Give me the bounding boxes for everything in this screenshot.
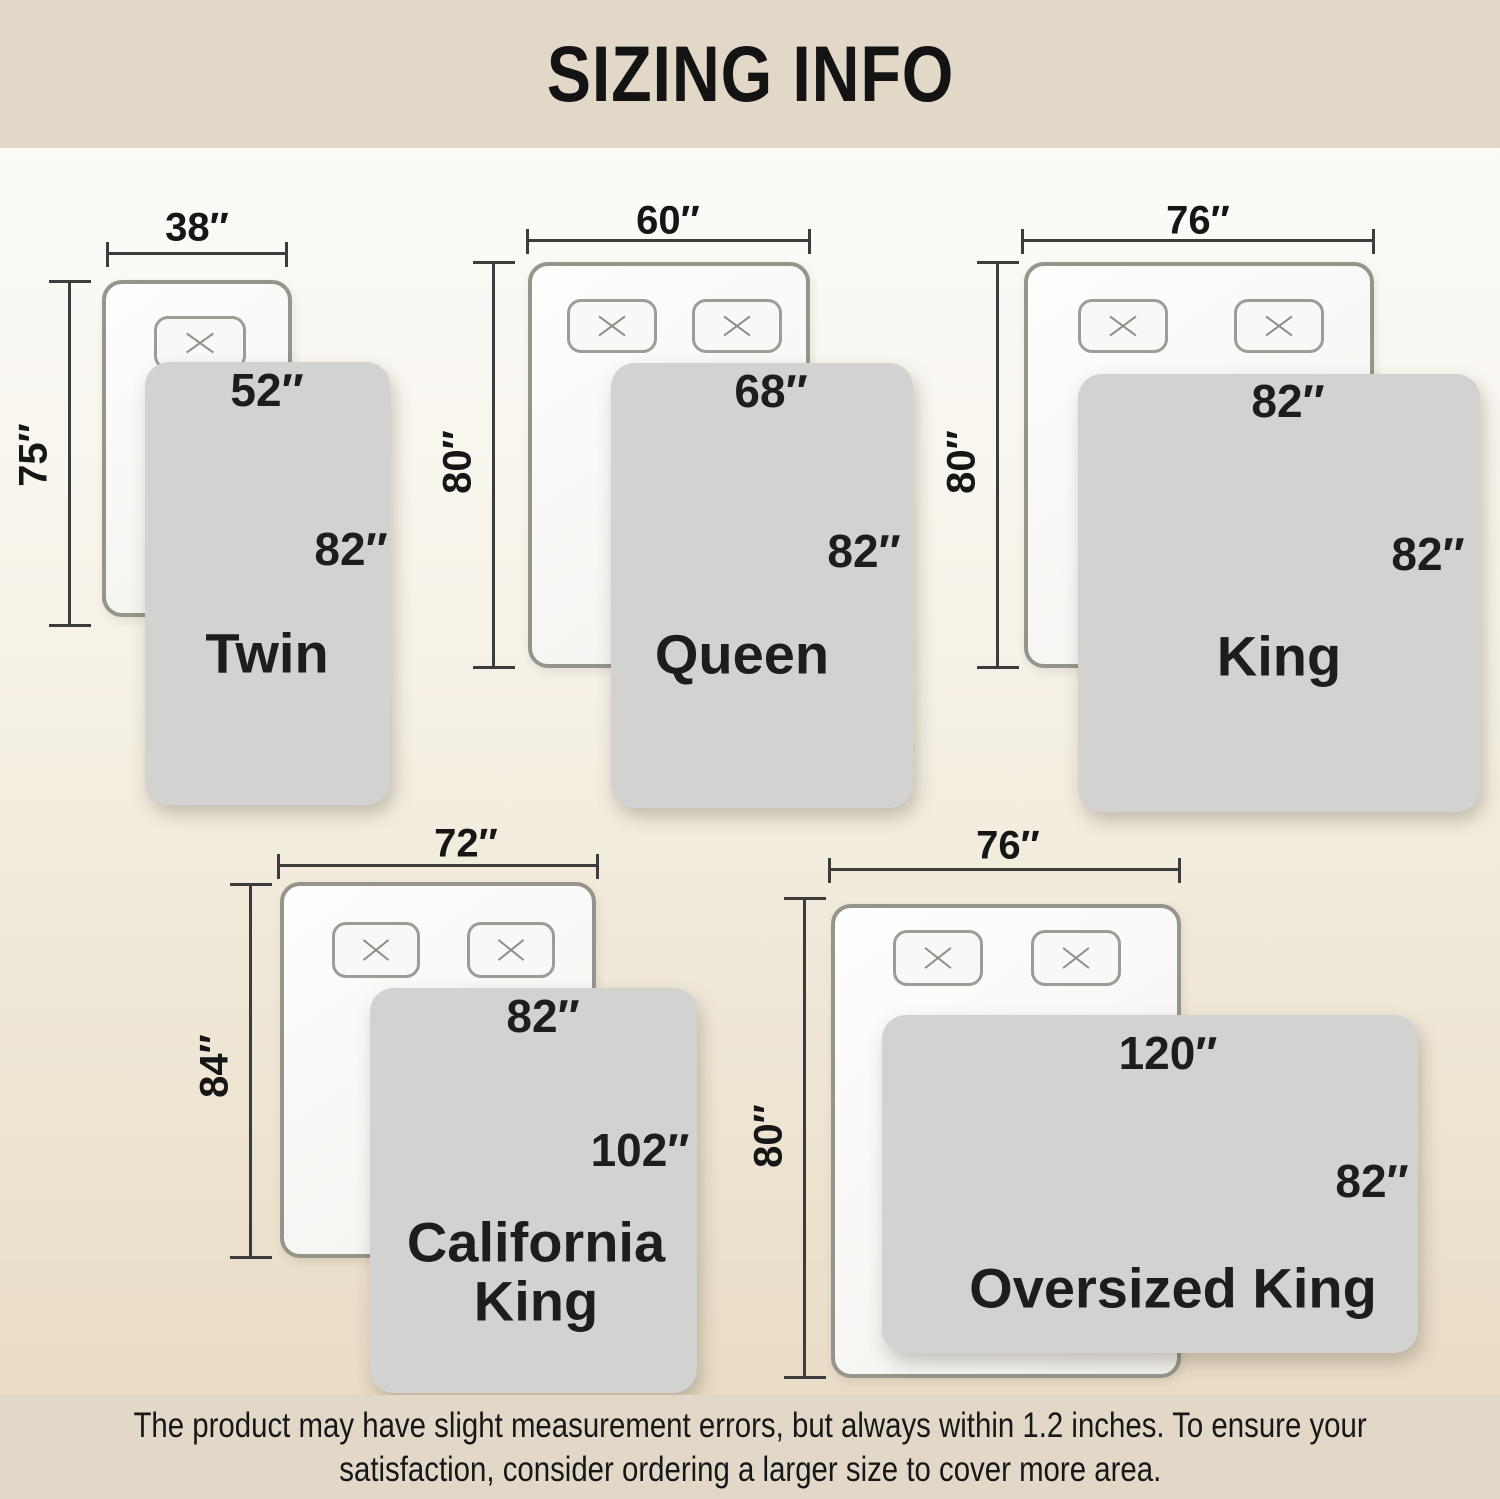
oversized-king-bed-height-label: 80″: [747, 1104, 792, 1168]
pillow-x-icon: [1243, 308, 1315, 344]
pillow-x-icon: [701, 308, 773, 344]
oversized-king-size-name: Oversized King: [958, 1258, 1388, 1317]
oversized-king-blanket-width-label: 120″: [1119, 1026, 1218, 1080]
oversized-king-pillow-right: [1031, 930, 1121, 986]
king-size-name: King: [1217, 626, 1341, 685]
king-bed-width-label: 76″: [1166, 199, 1230, 244]
queen-bed-height-label: 80″: [436, 430, 481, 494]
california-king-size-name: California King: [361, 1213, 711, 1332]
queen-blanket-width-label: 68″: [734, 364, 807, 418]
oversized-king-bed-width-label: 76″: [976, 824, 1040, 869]
oversized-king-blanket-height-label: 82″: [1335, 1154, 1408, 1208]
california-king-height-dimension-line: [249, 884, 252, 1258]
king-blanket-width-label: 82″: [1251, 374, 1324, 428]
king-height-dimension-line: [996, 262, 999, 668]
twin-size-name: Twin: [205, 623, 328, 682]
footer-note-line-2: satisfaction, consider ordering a larger…: [339, 1449, 1161, 1490]
page-title: SIZING INFO: [546, 28, 953, 120]
twin-bed-width-label: 38″: [165, 206, 229, 251]
oversized-king-height-dimension-line: [803, 898, 806, 1378]
california-king-pillow-right: [467, 922, 555, 978]
california-king-blanket-height-label: 102″: [591, 1123, 690, 1177]
pillow-x-icon: [476, 931, 546, 969]
sizing-infographic: SIZING INFO 38″ 75″ 52″ 82″ Twin 60″ 80″…: [0, 0, 1500, 1499]
queen-pillow-right: [692, 299, 782, 353]
footer-note-line-1: The product may have slight measurement …: [133, 1405, 1366, 1446]
king-blanket-height-label: 82″: [1391, 527, 1464, 581]
queen-blanket: [611, 363, 913, 808]
footer-band: The product may have slight measurement …: [0, 1395, 1500, 1499]
king-blanket: [1078, 374, 1480, 812]
california-king-pillow-left: [332, 922, 420, 978]
pillow-x-icon: [163, 325, 237, 361]
twin-blanket: [145, 362, 390, 805]
king-bed-height-label: 80″: [940, 430, 985, 494]
queen-height-dimension-line: [492, 262, 495, 668]
california-king-bed-height-label: 84″: [193, 1034, 238, 1098]
queen-size-name: Queen: [655, 624, 829, 683]
king-pillow-left: [1078, 299, 1168, 353]
pillow-x-icon: [1087, 308, 1159, 344]
queen-blanket-height-label: 82″: [827, 524, 900, 578]
oversized-king-pillow-left: [893, 930, 983, 986]
twin-width-dimension-line: [107, 252, 287, 255]
twin-height-dimension-line: [68, 281, 71, 626]
pillow-x-icon: [1040, 939, 1112, 977]
twin-blanket-width-label: 52″: [230, 363, 303, 417]
king-pillow-right: [1234, 299, 1324, 353]
queen-pillow-left: [567, 299, 657, 353]
california-king-blanket-width-label: 82″: [506, 989, 579, 1043]
pillow-x-icon: [576, 308, 648, 344]
twin-bed-height-label: 75″: [12, 423, 57, 487]
pillow-x-icon: [341, 931, 411, 969]
twin-blanket-height-label: 82″: [314, 522, 387, 576]
header-band: SIZING INFO: [0, 0, 1500, 148]
queen-bed-width-label: 60″: [636, 199, 700, 244]
california-king-bed-width-label: 72″: [434, 822, 498, 867]
pillow-x-icon: [902, 939, 974, 977]
